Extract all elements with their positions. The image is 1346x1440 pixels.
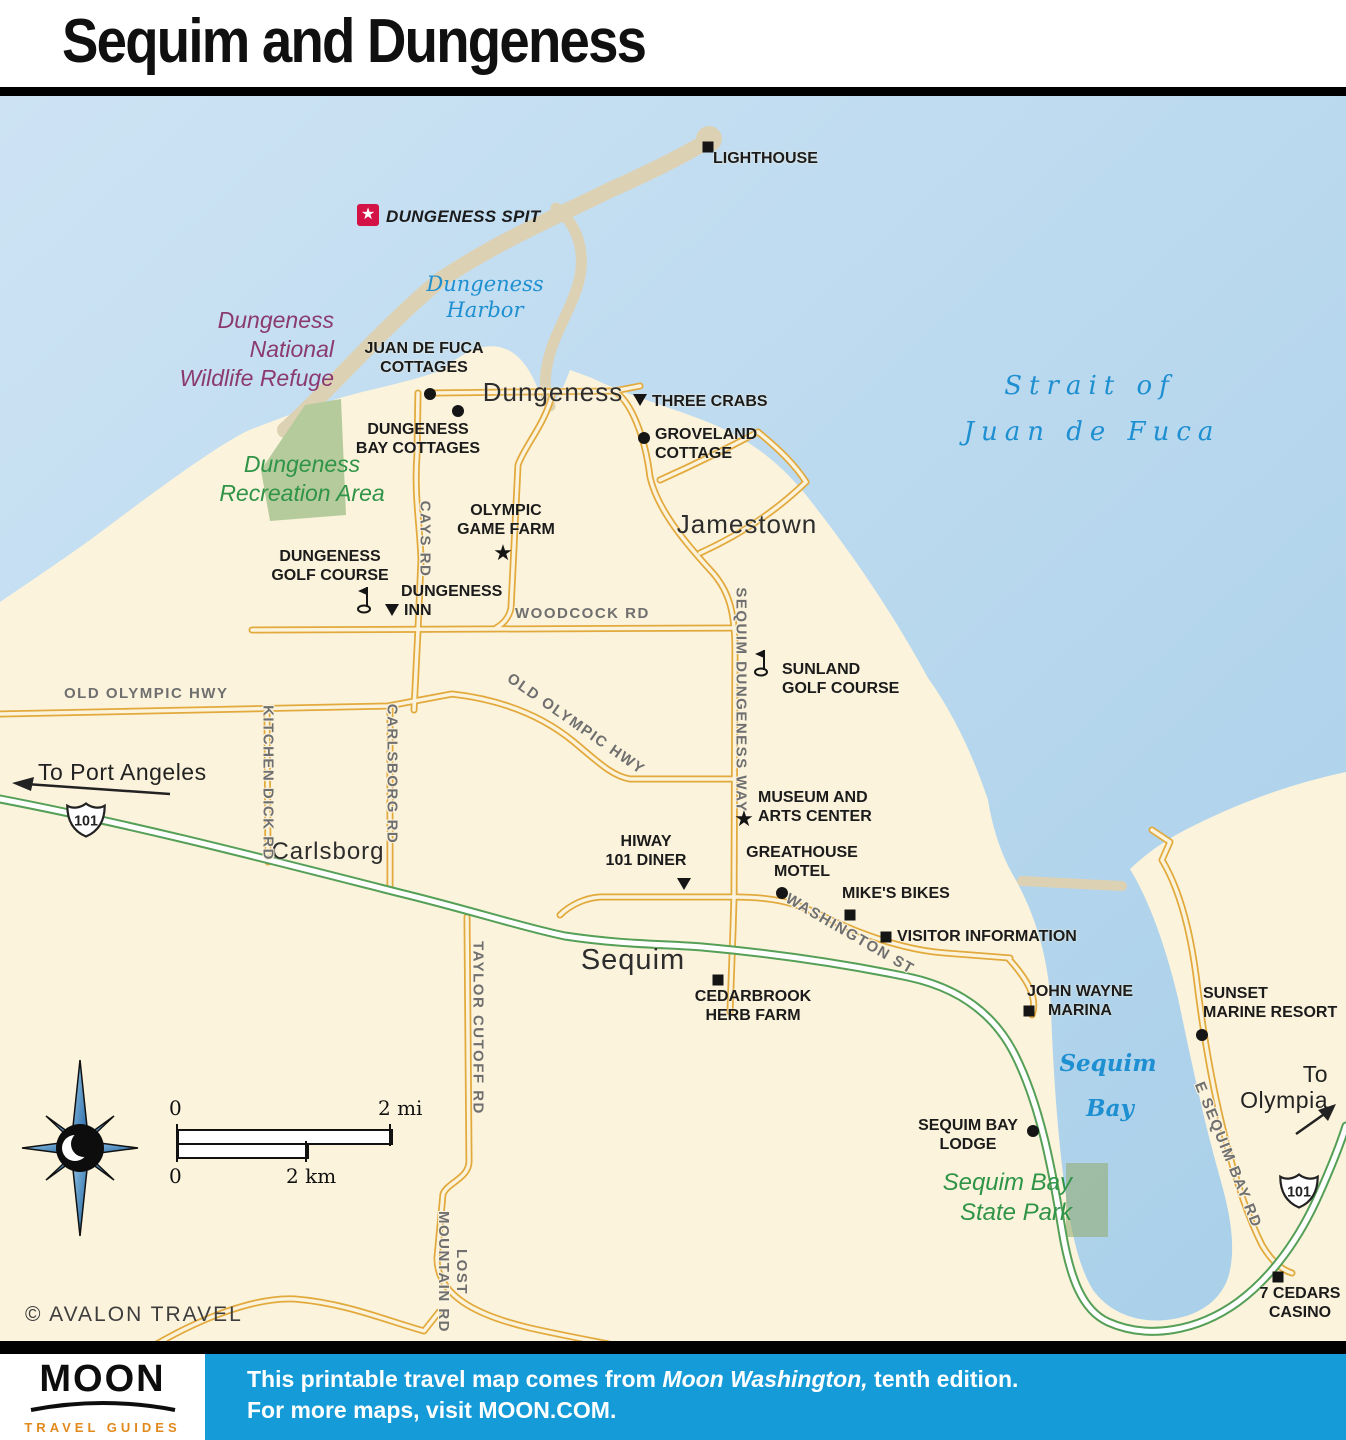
visitor-information-marker-icon (881, 932, 892, 943)
town-label-sequim: Sequim (581, 944, 685, 977)
dungeness-bay-cottages-marker-icon (452, 405, 464, 417)
scale-tick-left (176, 1124, 178, 1162)
scale-tick-km (305, 1141, 307, 1162)
poi-label-sequim-bay-lodge: SEQUIM BAY LODGE (918, 1117, 1018, 1154)
greathouse-motel-marker-icon (776, 887, 788, 899)
us-101-shield-east-icon: 101 (1277, 1171, 1321, 1211)
poi-label-hiway-101-diner: HIWAY 101 DINER (606, 833, 687, 870)
water-label-sequim-bay-line2: Bay (1086, 1095, 1134, 1122)
hiway-101-diner-marker-icon (677, 878, 691, 890)
poi-label-sunset-marine-resort: SUNSET MARINE RESORT (1203, 985, 1337, 1022)
scale-tick-mi (389, 1124, 391, 1146)
scale-km-end: 2 km (286, 1164, 336, 1188)
dungeness-golf-flag-icon (356, 585, 374, 615)
poi-label-sunland-golf-course: SUNLAND GOLF COURSE (782, 661, 899, 698)
juan-de-fuca-cottages-marker-icon (424, 388, 436, 400)
moon-logo: MOON TRAVEL GUIDES (0, 1354, 205, 1440)
poi-label-museum-arts-center: MUSEUM AND ARTS CENTER (758, 789, 872, 826)
mikes-bikes-marker-icon (845, 910, 856, 921)
poi-label-groveland-cottage: GROVELAND COTTAGE (655, 426, 757, 463)
poi-label-greathouse-motel: GREATHOUSE MOTEL (746, 844, 858, 881)
poi-label-dungeness-spit: DUNGENESS SPIT (386, 207, 540, 227)
water-label-strait-line1: Strait of (1004, 371, 1176, 401)
footer-divider (0, 1341, 1346, 1354)
groveland-cottage-marker-icon (638, 432, 650, 444)
scale-km-start: 0 (169, 1164, 182, 1188)
three-crabs-marker-icon (633, 394, 647, 406)
poi-label-mikes-bikes: MIKE'S BIKES (842, 885, 950, 904)
page: Sequim and Dungeness (0, 0, 1346, 1440)
town-label-carlsborg: Carlsborg (271, 838, 384, 866)
poi-label-dungeness-golf-course: DUNGENESS GOLF COURSE (271, 548, 388, 585)
poi-label-visitor-information: VISITOR INFORMATION (897, 928, 1077, 947)
seven-cedars-marker-icon (1273, 1272, 1284, 1283)
us-101-shield-west-icon: 101 (64, 800, 108, 840)
museum-arts-star-icon: ★ (734, 808, 754, 830)
water-label-dungeness-harbor: Dungeness Harbor (426, 271, 543, 324)
road-label-carlsborg-rd: CARLSBORG RD (384, 704, 401, 845)
poi-label-seven-cedars-casino: 7 CEDARS CASINO (1260, 1285, 1341, 1322)
water-label-sequim-bay-line1: Sequim (1059, 1050, 1156, 1077)
cedarbrook-marker-icon (713, 975, 724, 986)
road-label-old-olympic-hwy-west: OLD OLYMPIC HWY (64, 685, 228, 702)
dungeness-inn-marker-icon (385, 604, 399, 616)
olympic-game-farm-star-icon: ★ (493, 542, 513, 564)
footer-line2: For more maps, visit MOON.COM. (247, 1395, 1018, 1426)
town-label-dungeness: Dungeness (483, 377, 624, 408)
footer-text: This printable travel map comes from Moo… (247, 1364, 1018, 1426)
page-title: Sequim and Dungeness (62, 6, 645, 77)
scale-bar-km (177, 1143, 309, 1159)
scale-mi-start: 0 (169, 1096, 182, 1120)
sequim-bay-lodge-marker-icon (1027, 1125, 1039, 1137)
svg-text:101: 101 (74, 814, 98, 830)
moon-logo-arc-icon (23, 1398, 183, 1412)
arrow-to-port-angeles-icon (8, 775, 178, 803)
poi-label-lighthouse: LIGHTHOUSE (713, 150, 818, 169)
poi-label-three-crabs: THREE CRABS (652, 393, 768, 412)
poi-label-dungeness-bay-cottages: DUNGENESS BAY COTTAGES (356, 421, 480, 458)
scale-mi-end: 2 mi (378, 1096, 422, 1120)
road-label-lost-mountain-rd: LOST MOUNTAIN RD (434, 1211, 470, 1333)
poi-label-john-wayne-marina: JOHN WAYNE MARINA (1027, 983, 1133, 1020)
compass-rose-icon (10, 1050, 150, 1250)
footer: MOON TRAVEL GUIDES This printable travel… (0, 1354, 1346, 1440)
water-label-strait-line2: Juan de Fuca (964, 417, 1221, 447)
town-label-jamestown: Jamestown (677, 509, 818, 540)
area-label-wildlife-refuge: Dungeness National Wildlife Refuge (120, 306, 334, 393)
road-label-cays-rd: CAYS RD (417, 501, 434, 578)
moon-logo-title: MOON (0, 1360, 205, 1398)
road-label-sequim-dungeness-way: SEQUIM DUNGENESS WAY (733, 587, 750, 812)
poi-label-juan-de-fuca-cottages: JUAN DE FUCA COTTAGES (364, 340, 483, 377)
area-label-recreation-area: Dungeness Recreation Area (219, 450, 384, 508)
road-label-woodcock-rd: WOODCOCK RD (515, 605, 650, 622)
road-label-taylor-cutoff-rd: TAYLOR CUTOFF RD (470, 941, 487, 1115)
map-graphic (0, 96, 1346, 1348)
poi-label-cedarbrook-herb-farm: CEDARBROOK HERB FARM (695, 988, 811, 1025)
copyright-text: © AVALON TRAVEL (25, 1303, 243, 1327)
lighthouse-marker-icon (703, 142, 714, 153)
arrow-to-olympia-icon (1290, 1098, 1342, 1140)
road-label-kitchen-dick-rd: KITCHEN DICK RD (260, 705, 277, 861)
dungeness-spit-star-icon: ★ (357, 204, 379, 226)
svg-text:101: 101 (1287, 1185, 1311, 1201)
poi-label-olympic-game-farm: OLYMPIC GAME FARM (457, 502, 555, 539)
sunland-golf-flag-icon (753, 648, 771, 678)
area-label-state-park: Sequim Bay State Park (860, 1168, 1072, 1228)
moon-logo-subtitle: TRAVEL GUIDES (0, 1420, 205, 1435)
poi-label-dungeness-inn-line2: INN (404, 602, 432, 621)
footer-line1: This printable travel map comes from Moo… (247, 1364, 1018, 1395)
sunset-marine-resort-marker-icon (1196, 1029, 1208, 1041)
poi-label-dungeness-inn-line1: DUNGENESS (401, 583, 502, 602)
